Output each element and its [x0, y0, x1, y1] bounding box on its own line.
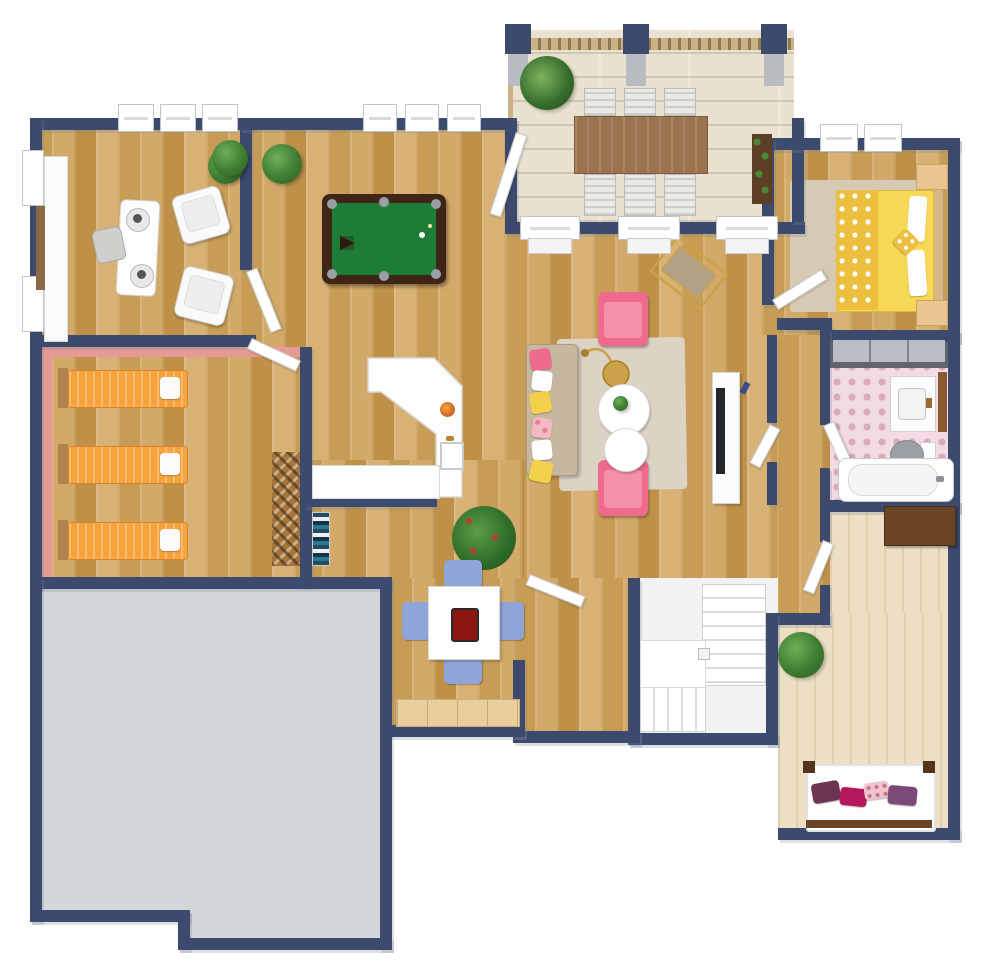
pool-cue-ball [419, 232, 425, 238]
wall-storage-top [30, 577, 392, 589]
nook-chair-left [402, 602, 430, 640]
wall-corridor-bottom [513, 731, 640, 743]
nightstand-bottom [916, 300, 948, 326]
pool-pocket-bm [379, 271, 389, 281]
kitchen-wall-counter [312, 465, 440, 499]
living-deck-window-1 [520, 216, 580, 240]
nightstand-top [916, 164, 948, 190]
pool-pocket-bl [327, 269, 337, 279]
lattice-wine-rack [272, 452, 300, 566]
bedroom-window-2 [864, 124, 902, 152]
deck-palm-plant [520, 56, 574, 110]
wall-bath-left-upper [820, 330, 830, 425]
bunk-room-pink-wall-left [42, 347, 52, 579]
deck-post-2 [623, 24, 649, 54]
wall-storage-bottom-east [178, 938, 392, 950]
lower-bedroom-dresser [884, 506, 956, 546]
office-window-1 [118, 104, 154, 132]
pool-ball-2 [428, 224, 432, 228]
bed-pillow-floral [863, 780, 890, 800]
wall-lower-bed-left-upper [820, 512, 830, 542]
bathtub-basin [848, 464, 938, 496]
coffee-table-2 [604, 428, 648, 472]
stairs-lower-flight [640, 684, 706, 732]
wall-bath-left-lower [820, 468, 830, 512]
deck-chair-2 [624, 88, 656, 116]
bed-post-left [803, 761, 815, 773]
sofa-pillow-floral [531, 417, 554, 440]
living-deck-window-2 [618, 216, 680, 240]
pink-armchair-top [598, 292, 648, 346]
wall-storage-left [30, 577, 42, 922]
deck-dining-table [574, 116, 708, 174]
bathroom-faucet [926, 398, 932, 408]
nook-chair-bottom [444, 656, 482, 684]
storage-room-floor-a [36, 583, 386, 916]
bed-pillow-purple [887, 785, 918, 806]
deck-chair-6 [664, 174, 696, 216]
office-desk-item-1 [133, 214, 142, 223]
wall-stairs-right [766, 613, 778, 745]
deck-trellis-plant [752, 134, 772, 204]
tomato-2 [492, 534, 498, 540]
yellow-bed-patterned-duvet [836, 190, 878, 310]
game-window-1 [363, 104, 397, 132]
wall-bedroom-right [948, 138, 960, 342]
bunk-headboard-1 [58, 368, 68, 408]
sofa-pillow-yellow-1 [528, 390, 552, 414]
wall-living-hall-upper [767, 335, 777, 423]
tv-screen [716, 388, 725, 474]
nook-chair-right [496, 602, 524, 640]
wall-hall-bedroom [777, 318, 832, 330]
sofa-pillow-white-2 [531, 439, 553, 461]
tomato-1 [466, 518, 472, 524]
game-room-plant-1 [212, 140, 248, 176]
bunk-headboard-2 [58, 444, 68, 484]
wall-living-hall-lower [767, 462, 777, 505]
pool-pocket-tr [431, 199, 441, 209]
kitchen-bookshelf [312, 512, 330, 566]
bunk-pillow-2 [160, 453, 180, 475]
wall-deck-right [792, 118, 804, 222]
bathroom-sink [898, 388, 926, 420]
office-floor-mat [36, 206, 45, 290]
office-side-window-1 [22, 150, 44, 206]
window-seat-2 [627, 238, 671, 254]
stairs-winder [640, 640, 706, 688]
bed-post-right [923, 761, 935, 773]
bunk-pillow-3 [160, 529, 180, 551]
stairs-straight-flight [702, 584, 766, 686]
game-window-3 [447, 104, 481, 132]
pool-pocket-tm [379, 197, 389, 207]
deck-post-1 [505, 24, 531, 54]
nook-game-board [451, 608, 479, 642]
deck-chair-3 [664, 88, 696, 116]
deck-post-3 [761, 24, 787, 54]
wall-stairs-left [628, 578, 640, 745]
wall-office-game-divider [240, 118, 252, 270]
game-room-plant-2 [262, 144, 302, 184]
bed-foot-rail [806, 820, 932, 828]
deck-post-2-base [626, 54, 646, 86]
wall-bunk-left [30, 347, 42, 589]
game-window-2 [405, 104, 439, 132]
wall-lower-bed-right [948, 500, 960, 840]
pool-rack-triangle [340, 236, 354, 250]
coffee-table-plant [613, 396, 628, 411]
bedroom-window-1 [820, 124, 858, 152]
yellow-bed-pillow-2 [906, 249, 927, 296]
deck-railing [508, 38, 794, 50]
bunk-headboard-3 [58, 520, 68, 560]
stairs-newel [698, 648, 710, 660]
kitchen-faucet [446, 436, 454, 441]
wall-bunk-right [300, 347, 312, 587]
sofa-pillow-yellow-2 [528, 459, 554, 484]
deck-chair-4 [584, 174, 616, 216]
deck-post-3-base [764, 54, 784, 86]
office-desk-item-2 [137, 270, 146, 279]
office-window-3 [202, 104, 238, 132]
nook-chair-top [444, 560, 482, 588]
closet-sliding-doors [833, 340, 945, 362]
kitchen-sink [440, 442, 464, 470]
sofa-pillow-pink [529, 348, 553, 372]
wall-storage-right [380, 577, 392, 950]
floor-plan [0, 0, 1000, 964]
nook-sideboard [396, 699, 520, 727]
living-deck-window-3 [716, 216, 778, 240]
wall-storage-bottom-west [30, 910, 190, 922]
bunk-pillow-1 [160, 377, 180, 399]
lower-bedroom-plant [778, 632, 824, 678]
office-cabinet-row [44, 156, 68, 342]
sofa-pillow-white-1 [531, 370, 553, 392]
pool-pocket-br [431, 269, 441, 279]
window-seat-1 [528, 238, 572, 254]
deck-chair-1 [584, 88, 616, 116]
tomato-3 [470, 548, 476, 554]
bathroom-wall-shelf [938, 372, 947, 432]
office-window-2 [160, 104, 196, 132]
window-seat-3 [725, 238, 769, 254]
wall-stairs-bottom [628, 733, 778, 745]
wall-bedroom-top [762, 138, 960, 150]
fruit-bowl [440, 402, 455, 417]
bathtub-faucet [936, 476, 944, 482]
pool-pocket-tl [327, 199, 337, 209]
deck-chair-5 [624, 174, 656, 216]
